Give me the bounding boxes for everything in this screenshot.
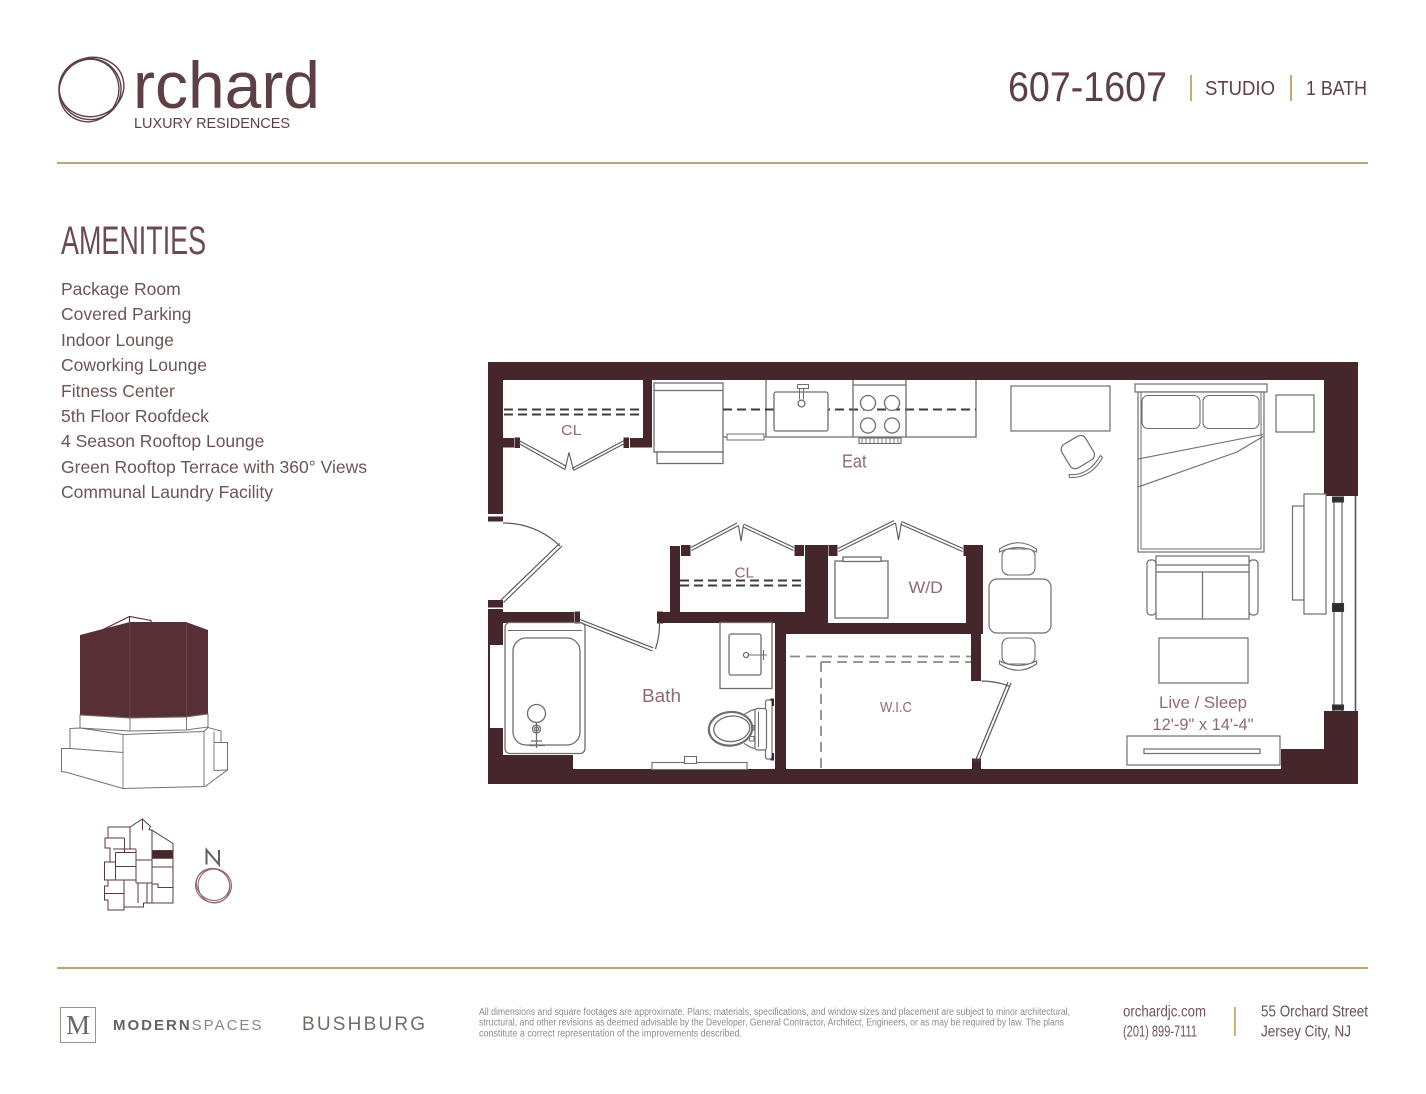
svg-text:CL: CL [561,422,582,439]
svg-text:Live / Sleep: Live / Sleep [1159,693,1247,712]
svg-text:W/D: W/D [909,578,944,597]
svg-text:Eat: Eat [842,452,867,472]
svg-text:12'-9" x 14'-4": 12'-9" x 14'-4" [1153,716,1254,734]
svg-text:W.I.C: W.I.C [880,699,912,716]
svg-text:Bath: Bath [642,686,681,706]
svg-text:CL: CL [735,565,755,582]
